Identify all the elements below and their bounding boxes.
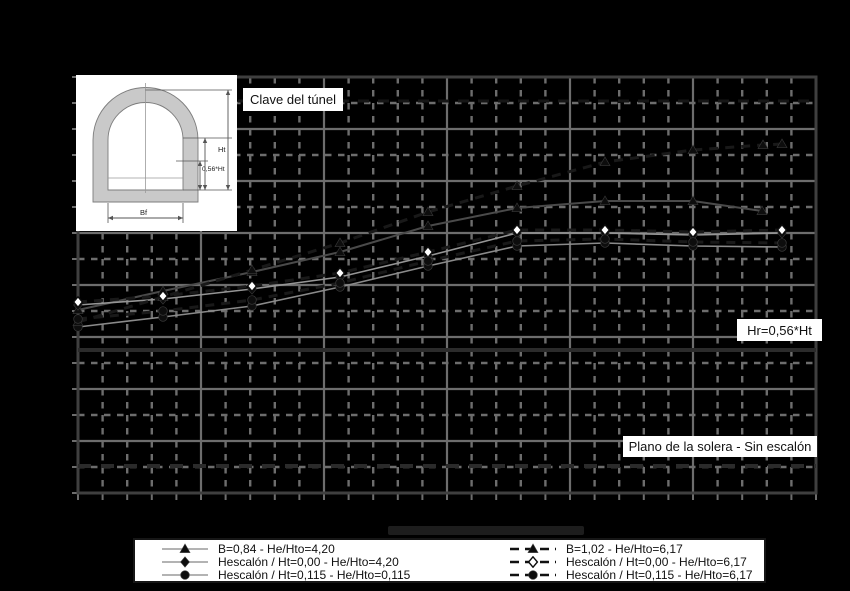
legend-row: Hescalón / Ht=0,115 - He/Hto=0,115Hescal…	[135, 568, 764, 581]
legend-sample-triangle-filled	[509, 543, 557, 555]
triangle-marker	[247, 265, 257, 274]
bf-dimension-label: Bf	[140, 208, 148, 217]
crown-line-label: Clave del túnel	[243, 88, 343, 111]
legend-label: Hescalón / Ht=0,115 - He/Hto=0,115	[218, 568, 410, 582]
legend-sample-diamond-open	[509, 556, 557, 568]
legend-item: Hescalón / Ht=0,00 - He/Hto=4,20	[135, 555, 483, 569]
circle-marker	[778, 239, 787, 248]
tunnel-cross-section-inset: Ht 0,56*Ht Bf	[76, 75, 237, 231]
legend-label: B=0,84 - He/Hto=4,20	[218, 542, 335, 556]
legend-item: Hescalón / Ht=0,00 - He/Hto=6,17	[483, 555, 747, 569]
legend-item: B=1,02 - He/Hto=6,17	[483, 542, 683, 556]
circle-marker	[74, 315, 83, 324]
dim-056-arrow-bottom	[198, 185, 202, 190]
legend-sample-circle-filled	[509, 569, 557, 581]
circle-marker	[248, 296, 257, 305]
legend-label: Hescalón / Ht=0,00 - He/Hto=4,20	[218, 555, 399, 569]
legend-sample-circle-filled	[161, 569, 209, 581]
open-diamond-marker	[529, 556, 538, 566]
legend-item: Hescalón / Ht=0,115 - He/Hto=0,115	[135, 568, 483, 582]
bf-dim-arrow-left	[108, 216, 113, 220]
circle-marker	[336, 279, 345, 288]
legend-label: Hescalón / Ht=0,115 - He/Hto=6,17	[566, 568, 753, 582]
diamond-marker	[181, 556, 190, 566]
tunnel-cross-section-drawing: Ht 0,56*Ht Bf	[76, 75, 237, 231]
total-dim-arrow-bottom	[226, 185, 230, 190]
chart-legend: B=0,84 - He/Hto=4,20B=1,02 - He/Hto=6,17…	[133, 538, 766, 583]
ht-dim-arrow-top	[203, 138, 207, 143]
circle-marker	[181, 570, 190, 579]
bf-dim-arrow-right	[178, 216, 183, 220]
dim-056-label: 0,56*Ht	[202, 166, 225, 173]
legend-row: Hescalón / Ht=0,00 - He/Hto=4,20Hescalón…	[135, 555, 764, 568]
ht-dimension-label: Ht	[218, 145, 226, 154]
ht-dim-arrow-bottom	[203, 185, 207, 190]
circle-marker	[601, 235, 610, 244]
legend-item: Hescalón / Ht=0,115 - He/Hto=6,17	[483, 568, 753, 582]
x-axis-title-illegible	[388, 526, 584, 535]
total-dim-arrow-top	[226, 90, 230, 95]
circle-marker	[159, 307, 168, 316]
legend-item: B=0,84 - He/Hto=4,20	[135, 542, 483, 556]
circle-marker	[689, 238, 698, 247]
figure-canvas: Ht 0,56*Ht Bf Clave del túnel Hr=0,56*Ht…	[0, 0, 850, 591]
solera-line-label: Plano de la solera - Sin escalón	[623, 436, 817, 457]
circle-marker	[424, 257, 433, 266]
legend-sample-triangle-filled	[161, 543, 209, 555]
legend-label: Hescalón / Ht=0,00 - He/Hto=6,17	[566, 555, 747, 569]
triangle-marker	[600, 157, 610, 166]
hr-line-label: Hr=0,56*Ht	[737, 319, 822, 341]
legend-sample-diamond-filled	[161, 556, 209, 568]
circle-marker	[513, 237, 522, 246]
circle-marker	[529, 570, 538, 579]
legend-label: B=1,02 - He/Hto=6,17	[566, 542, 683, 556]
legend-row: B=0,84 - He/Hto=4,20B=1,02 - He/Hto=6,17	[135, 542, 764, 555]
